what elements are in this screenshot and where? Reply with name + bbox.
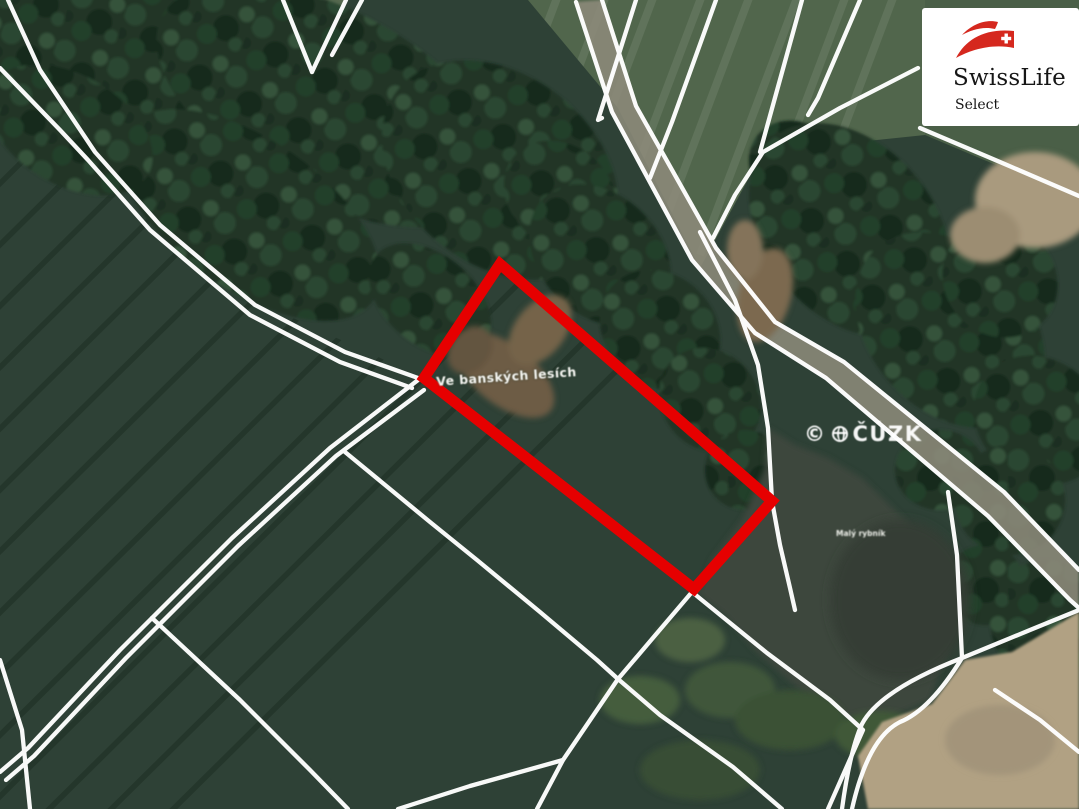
cuzk-text: ČÚZK <box>853 422 923 446</box>
pond-name-label: Malý rybník <box>836 529 885 538</box>
swisslife-logo-icon <box>954 18 1020 66</box>
swisslife-title: SwissLife <box>953 65 1066 91</box>
swisslife-logo-card: SwissLife Select <box>922 8 1079 126</box>
swisslife-subtitle: Select <box>955 97 999 113</box>
map-image: Ve banských lesích © ČÚZK Malý rybník Sw… <box>0 0 1079 809</box>
aerial-map-canvas <box>0 0 1079 809</box>
copyright-symbol: © <box>804 422 827 446</box>
cuzk-watermark: © ČÚZK <box>804 422 922 446</box>
cuzk-globe-icon <box>832 426 848 442</box>
